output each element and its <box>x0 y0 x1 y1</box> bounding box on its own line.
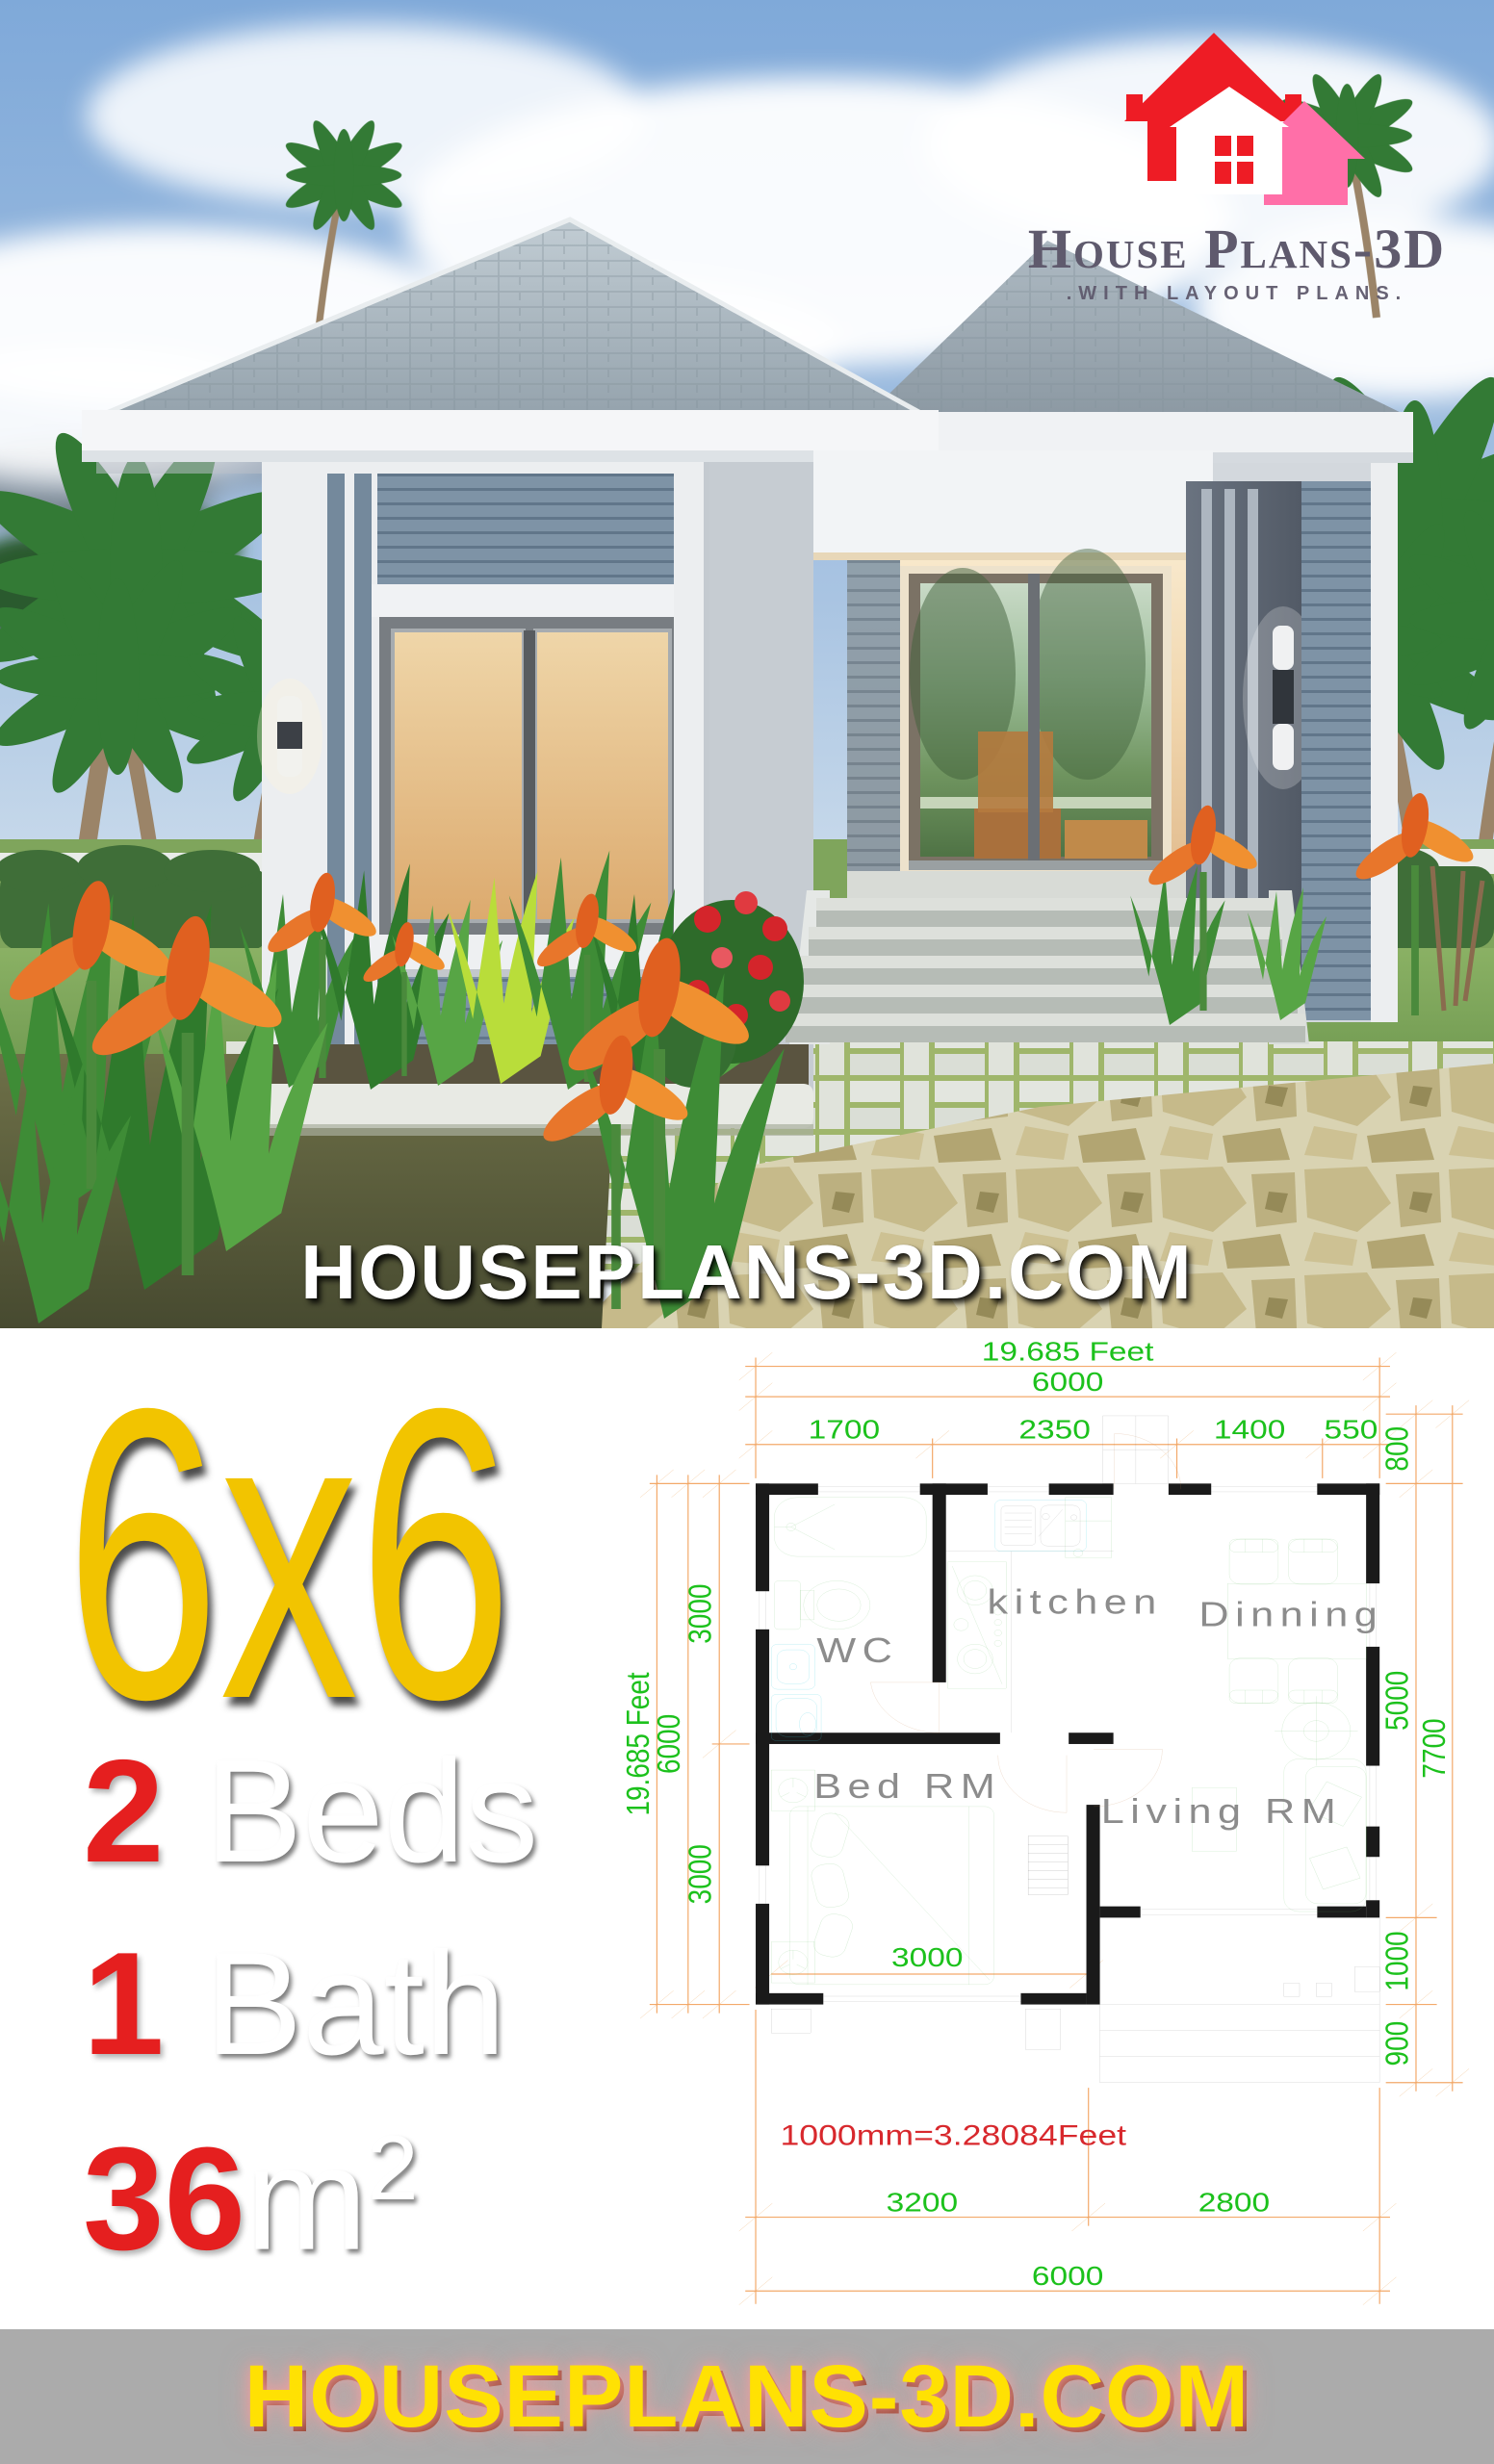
walls <box>756 1483 1379 2004</box>
beds-label: Beds <box>205 1730 538 1893</box>
dim-seg-2350: 2350 <box>1018 1414 1090 1445</box>
floor-plan: 19.685 Feet 6000 1700 2350 1400 550 800 … <box>626 1336 1494 2400</box>
dim-left-6000: 6000 <box>651 1714 687 1774</box>
logo-subtitle: .WITH LAYOUT PLANS. <box>982 283 1492 305</box>
dim-seg-550: 550 <box>1325 1414 1378 1445</box>
bath-label: Bath <box>205 1922 506 2086</box>
dim-stoop-800: 800 <box>1378 1426 1415 1472</box>
poster: HOUSEPLANS-3D.COM House Plans-3D .WITH L… <box>0 0 1494 2464</box>
dim-bottom-2800: 2800 <box>1198 2187 1270 2218</box>
room-kitchen: kitchen <box>988 1583 1163 1622</box>
porch-steps <box>786 890 1309 1044</box>
right-siding <box>1301 481 1371 1020</box>
dresser-icon <box>1028 1836 1068 1895</box>
brand-logo: House Plans-3D .WITH LAYOUT PLANS. <box>982 27 1492 305</box>
logo-title: House Plans-3D <box>982 217 1492 281</box>
left-window <box>379 617 683 935</box>
porch-floor <box>847 871 1186 898</box>
kitchen-sink-basins <box>1001 1505 1080 1546</box>
planter-curb <box>241 1084 813 1128</box>
window-lintel <box>372 584 689 617</box>
area-unit: m <box>245 2117 368 2281</box>
footer-site-url: HOUSEPLANS-3D.COM <box>245 2347 1249 2448</box>
dim-porch-1000: 1000 <box>1378 1931 1415 1990</box>
entry-door <box>900 549 1172 874</box>
dim-living-5000: 5000 <box>1378 1671 1415 1731</box>
dim-bottom-6000: 6000 <box>1032 2261 1103 2292</box>
porch-and-steps <box>771 1416 1379 2083</box>
sofa-icon <box>1284 1758 1366 1912</box>
bathtub-icon <box>774 1498 926 1556</box>
room-wc: WC <box>816 1631 898 1670</box>
dim-overall-7700: 7700 <box>1416 1718 1453 1778</box>
dim-left-3000-lower: 3000 <box>682 1844 718 1904</box>
fridge-icon <box>1066 1498 1112 1558</box>
scale-note: 1000mm=3.28084Feet <box>780 2119 1126 2152</box>
bath-spec: 1 Bath <box>83 1931 660 2077</box>
room-living: Living RM <box>1101 1792 1342 1831</box>
fascia <box>82 410 939 450</box>
siding-upper <box>377 474 674 584</box>
room-labels: WC kitchen Dinning Bed RM Living RM <box>813 1583 1383 1831</box>
doors <box>870 1433 1180 1812</box>
beds-spec: 2 Beds <box>83 1738 660 1885</box>
porch-header <box>813 450 1213 558</box>
bedroom-fan-units <box>771 1770 814 1983</box>
porch-siding-sliver <box>847 560 900 871</box>
ceiling-fan-icon <box>1275 1696 1357 1765</box>
wall-lamp-icon <box>257 679 322 794</box>
rear-corner-trim <box>1371 463 1398 1022</box>
room-dining: Dinning <box>1198 1596 1383 1634</box>
footer-banner: HOUSEPLANS-3D.COM <box>0 2329 1494 2464</box>
dim-left-3000-upper: 3000 <box>682 1584 718 1644</box>
wash-basin-icon <box>771 1644 814 1689</box>
dim-bottom-3200: 3200 <box>887 2187 958 2218</box>
photo-watermark: HOUSEPLANS-3D.COM <box>0 1228 1494 1317</box>
dim-width-feet: 19.685 Feet <box>982 1336 1154 1367</box>
room-bed: Bed RM <box>813 1767 1001 1806</box>
dim-width-total: 6000 <box>1032 1366 1103 1397</box>
area-value: 36 <box>83 2117 245 2281</box>
dim-left-feet: 19.685 Feet <box>626 1672 656 1816</box>
stove-icon <box>948 1562 1006 1689</box>
toilet-icon <box>774 1580 869 1630</box>
logo-houses-icon <box>982 27 1492 215</box>
area-spec: 36m2 <box>83 2123 660 2272</box>
plot-size-title: 6x6 <box>65 1347 513 1761</box>
dim-seg-1700: 1700 <box>809 1414 880 1445</box>
bath-count: 1 <box>83 1922 165 2086</box>
dim-seg-1400: 1400 <box>1214 1414 1285 1445</box>
beds-count: 2 <box>83 1730 165 1893</box>
area-sup: 2 <box>368 2117 419 2220</box>
dim-steps-900: 900 <box>1378 2021 1415 2066</box>
dim-room-3000: 3000 <box>891 1942 963 1973</box>
